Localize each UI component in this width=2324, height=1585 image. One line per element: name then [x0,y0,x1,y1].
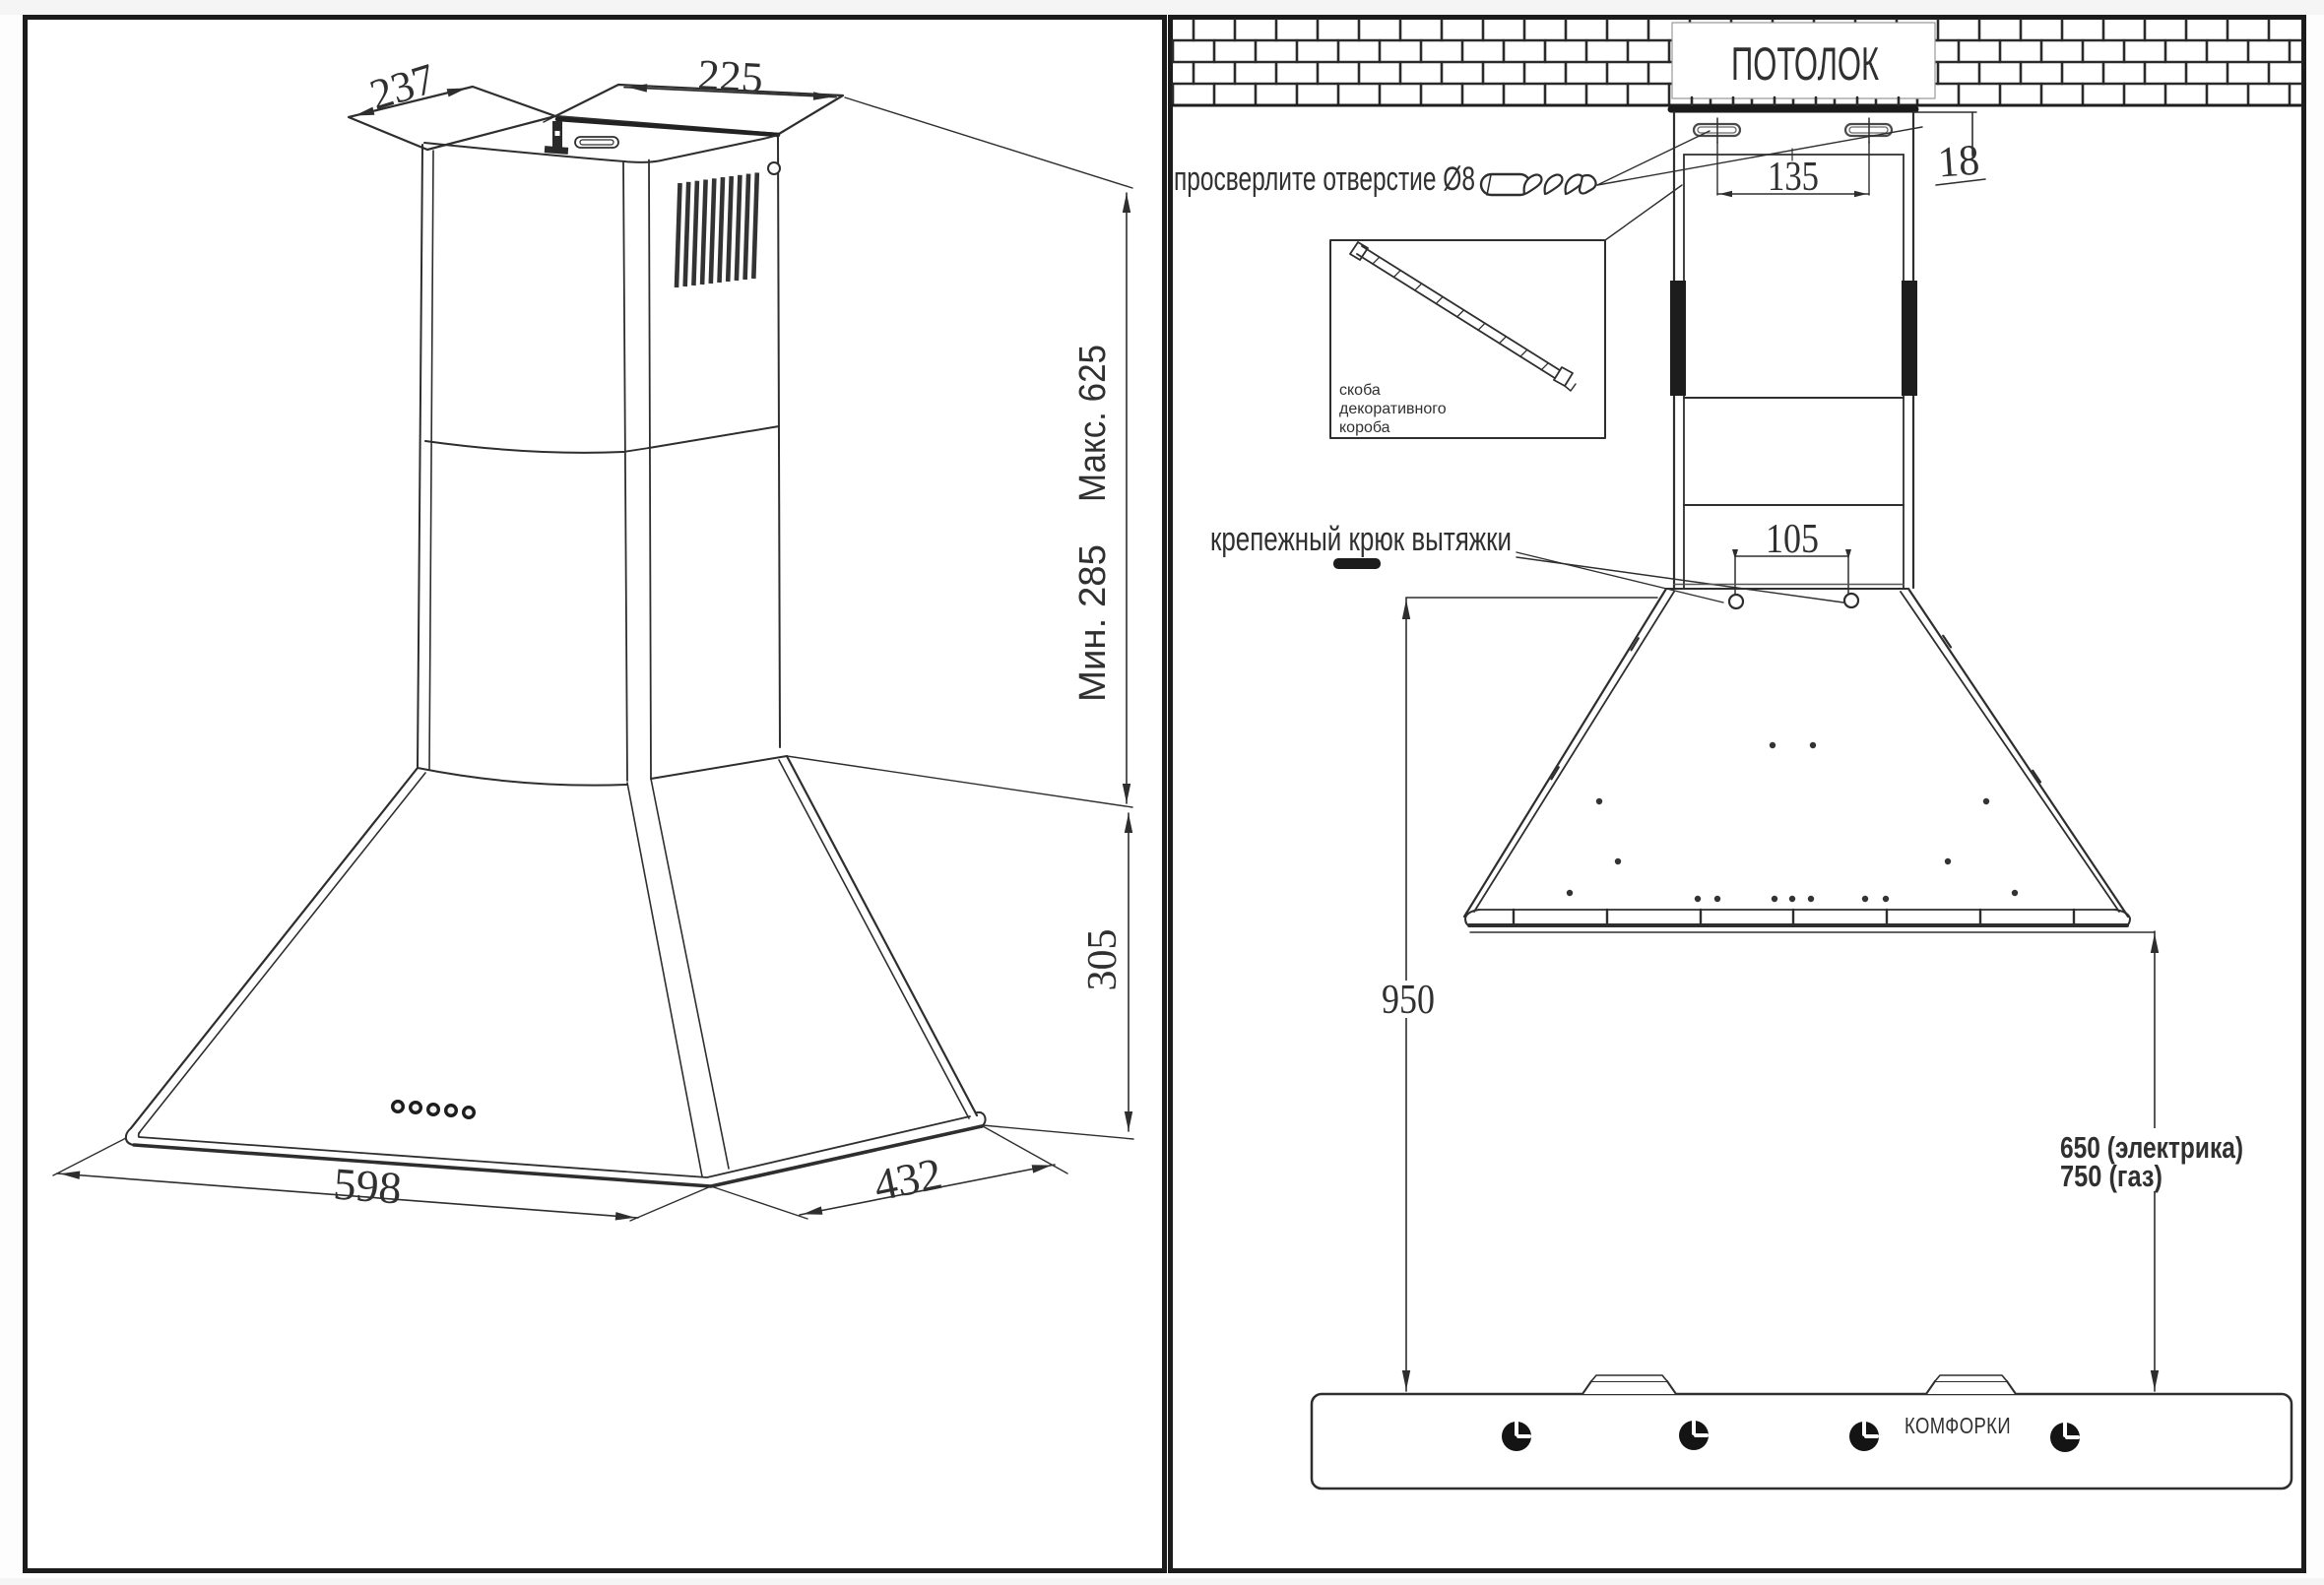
svg-text:305: 305 [1080,929,1126,991]
svg-text:225: 225 [697,50,764,101]
svg-text:Макс. 625: Макс. 625 [1072,345,1114,502]
svg-text:короба: короба [1339,419,1390,436]
svg-text:750 (газ): 750 (газ) [2060,1159,2163,1193]
svg-text:декоративного: декоративного [1339,401,1447,417]
svg-text:просверлите отверстие Ø8: просверлите отверстие Ø8 [1174,160,1475,198]
svg-text:крепежный крюк вытяжки: крепежный крюк вытяжки [1210,521,1512,558]
svg-text:598: 598 [332,1158,404,1213]
svg-text:105: 105 [1766,517,1819,562]
svg-text:18: 18 [1936,136,1980,187]
svg-text:КОМФОРКИ: КОМФОРКИ [1904,1413,2011,1438]
svg-text:135: 135 [1768,155,1819,200]
svg-text:скоба: скоба [1339,382,1381,399]
svg-text:ПОТОЛОК: ПОТОЛОК [1731,37,1879,90]
svg-text:Мин. 285: Мин. 285 [1072,544,1114,702]
svg-text:950: 950 [1382,978,1435,1023]
